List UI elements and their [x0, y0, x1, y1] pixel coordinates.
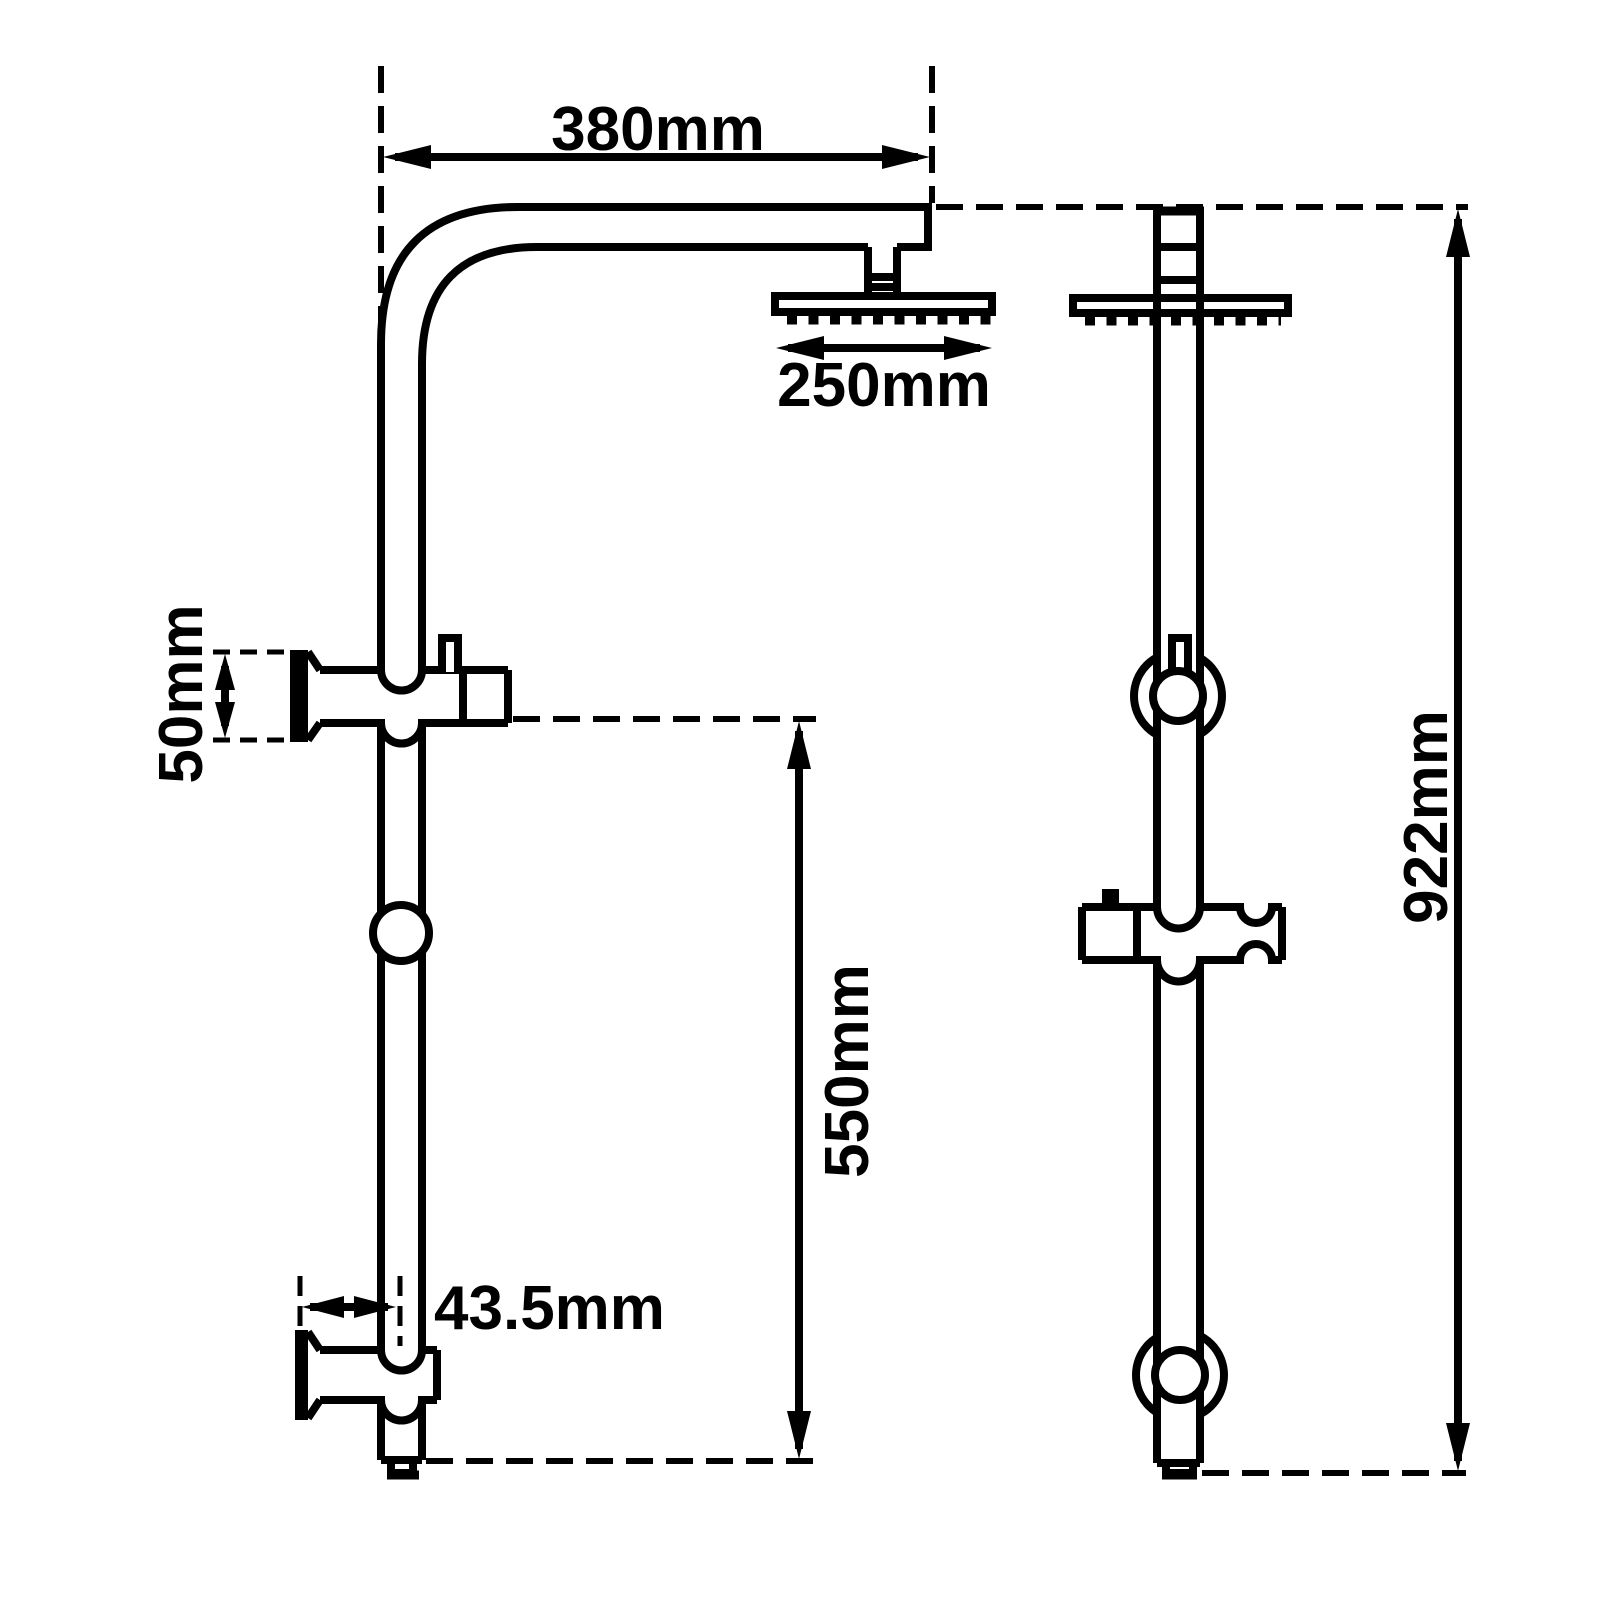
arrowhead-right: [354, 1296, 396, 1318]
wall-offset-dimension-label: 43.5mm: [434, 1274, 665, 1343]
dimension-total-height: 922mm: [1392, 209, 1470, 1471]
front-view: [1073, 207, 1288, 1475]
technical-drawing-canvas: 380mm 250mm 50mm 550mm 43.5mm 922mm: [0, 0, 1600, 1600]
shower-arm-outer-edge: [381, 207, 928, 352]
bracket-body-mask: [316, 666, 512, 727]
bottom-bracket-hub: [1155, 1350, 1205, 1400]
shower-head-plate-front: [1073, 298, 1288, 313]
shower-head-plate: [775, 296, 992, 312]
wall-plate-bottom: [295, 1330, 308, 1420]
bracket-height-dimension-label: 50mm: [147, 604, 216, 783]
arrowhead-down: [1446, 1423, 1470, 1471]
drawing-page: 380mm 250mm 50mm 550mm 43.5mm 922mm: [0, 0, 1600, 1600]
wall-plate-top: [290, 650, 308, 742]
dimension-lower-rail-span: 550mm: [787, 721, 882, 1459]
construction-lines: [213, 66, 1468, 1473]
arrowhead-left: [302, 1296, 344, 1318]
rail-front-mask: [1157, 207, 1200, 1463]
dimension-arm-reach: 380mm: [383, 95, 930, 169]
dimension-top-bracket-height: 50mm: [147, 604, 235, 783]
lower-rail-dimension-label: 550mm: [813, 964, 882, 1178]
top-bracket-hub: [1153, 671, 1203, 721]
arrowhead-up: [1446, 209, 1470, 257]
dimension-wall-offset: 43.5mm: [302, 1274, 665, 1343]
arrowhead-left: [383, 145, 431, 169]
arrowhead-down: [787, 1411, 811, 1459]
top-wall-bracket: [290, 638, 512, 744]
arrowhead-down: [215, 702, 235, 738]
arrowhead-up: [215, 654, 235, 690]
head-width-dimension-label: 250mm: [777, 351, 991, 420]
shower-head-connector: [868, 247, 897, 296]
slider-body-mask: [1082, 907, 1282, 960]
arrowhead-up: [787, 721, 811, 769]
slider-lock-knob: [1102, 889, 1119, 907]
dimension-head-width: 250mm: [776, 336, 992, 420]
arm-reach-dimension-label: 380mm: [551, 95, 765, 164]
slider-knob-side: [373, 905, 429, 961]
arrowhead-right: [882, 145, 930, 169]
total-height-dimension-label: 922mm: [1392, 710, 1461, 924]
